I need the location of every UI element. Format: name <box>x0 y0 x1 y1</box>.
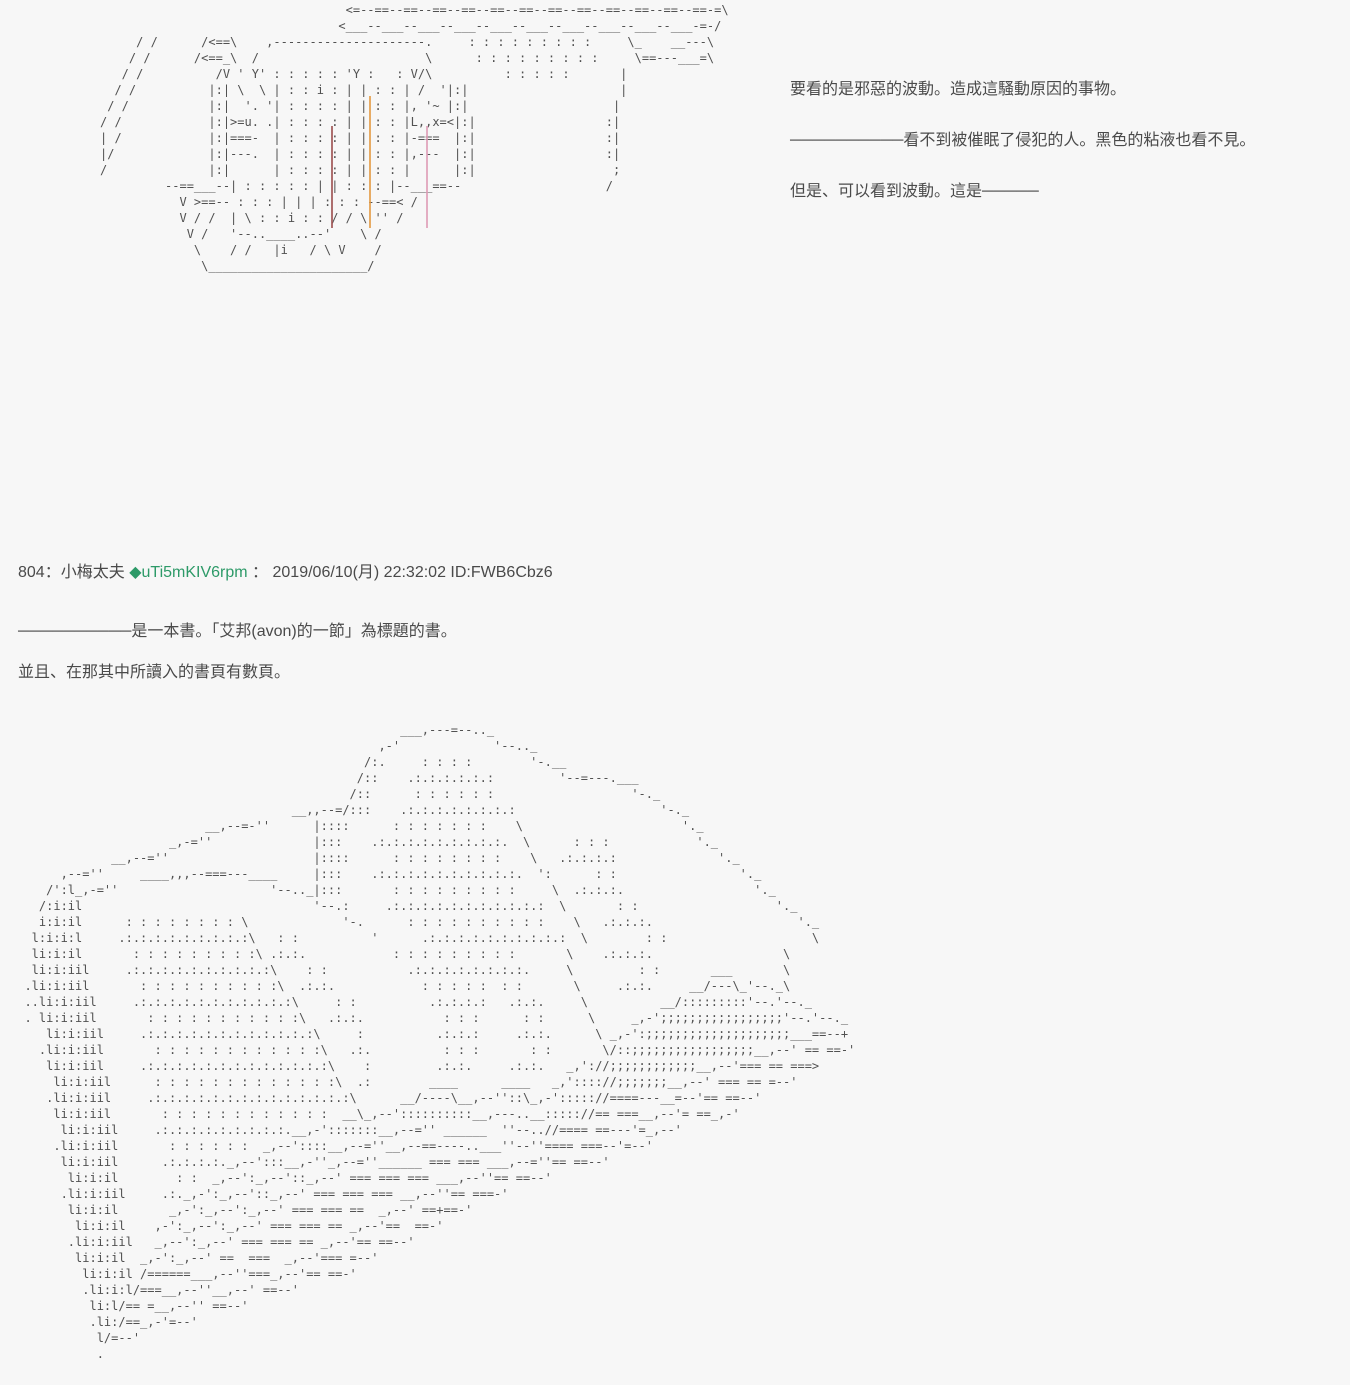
post-number[interactable]: 804 <box>18 564 45 581</box>
narration-line-1: 要看的是邪惡的波動。造成這騷動原因的事物。 <box>790 80 1255 100</box>
header-separator: ： <box>248 564 273 581</box>
narration-line-3: 但是、可以看到波動。這是───── <box>790 182 1255 202</box>
body-line-1: ──────────是一本書。「艾邦(avon)的一節」為標題的書。 <box>18 622 457 642</box>
post-number-separator: ： <box>45 564 61 581</box>
poster-id: ID:FWB6Cbz6 <box>450 564 552 581</box>
poster-name: 小梅太夫 <box>61 564 125 581</box>
post-header: 804：小梅太夫 ◆uTi5mKIV6rpm ： 2019/06/10(月) 2… <box>18 558 553 582</box>
narration-block: 要看的是邪惡的波動。造成這騷動原因的事物。 ──────────看不到被催眠了侵… <box>790 80 1255 233</box>
ascii-art-character: <=--==--==--==--==--==--==--==--==--==--… <box>100 2 729 274</box>
thread-page: <=--==--==--==--==--==--==--==--==--==--… <box>0 0 1350 1385</box>
aa-accent-maroon-line <box>331 126 333 228</box>
tripcode: ◆uTi5mKIV6rpm <box>129 564 247 581</box>
post-body: ──────────是一本書。「艾邦(avon)的一節」為標題的書。 並且、在那… <box>18 622 457 704</box>
post-datetime: 2019/06/10(月) 22:32:02 <box>273 564 446 581</box>
aa-accent-pink-line <box>426 126 428 228</box>
narration-line-2: ──────────看不到被催眠了侵犯的人。黑色的粘液也看不見。 <box>790 131 1255 151</box>
aa-accent-orange-line <box>369 96 371 228</box>
body-line-2: 並且、在那其中所讀入的書頁有數頁。 <box>18 663 457 683</box>
ascii-art-book: ___,---=--.._ ,-' '--.._ /:. : : : : '-.… <box>10 722 855 1362</box>
